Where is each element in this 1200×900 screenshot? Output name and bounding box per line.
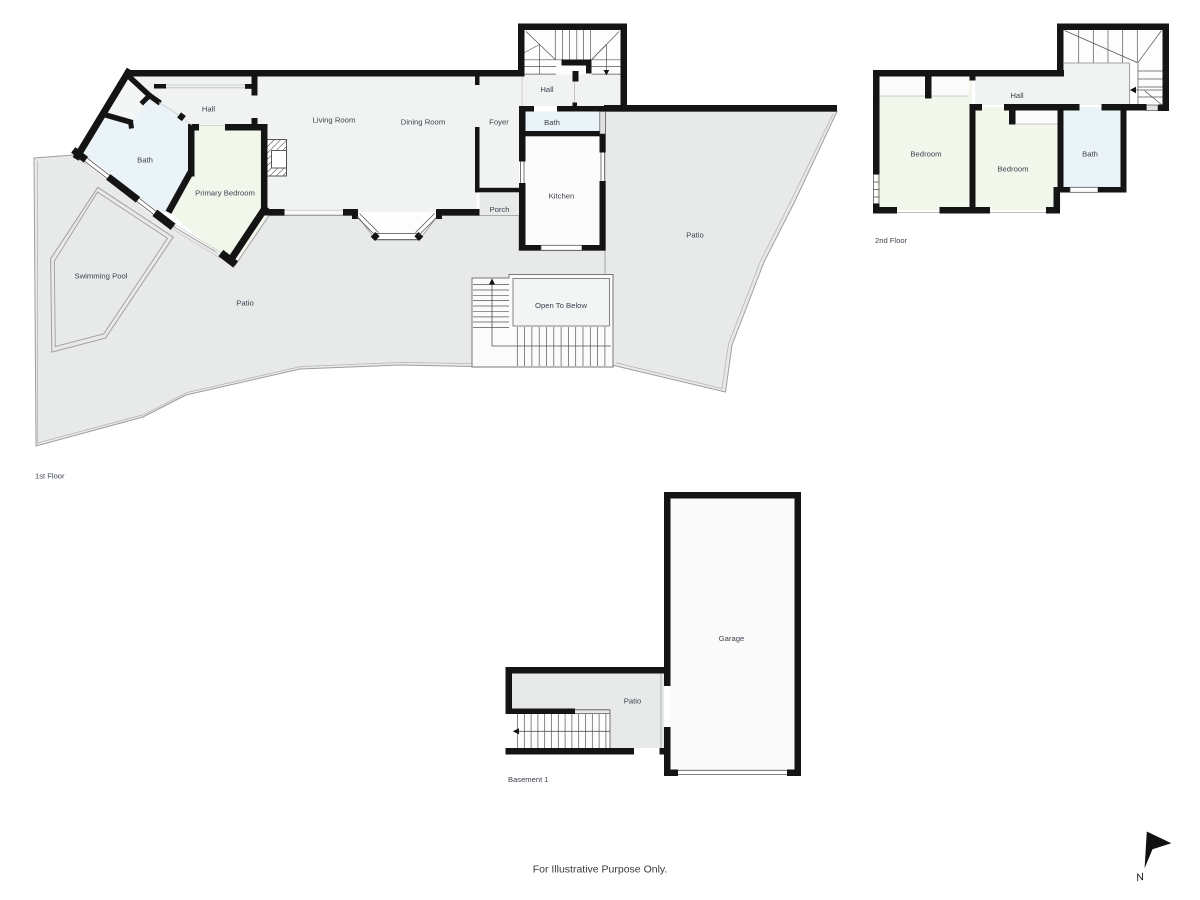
svg-text:Swimming Pool: Swimming Pool xyxy=(75,272,128,281)
svg-text:Kitchen: Kitchen xyxy=(549,192,575,201)
svg-text:Open To Below: Open To Below xyxy=(535,301,587,310)
svg-text:Bath: Bath xyxy=(1082,150,1098,159)
svg-text:Hall: Hall xyxy=(540,85,554,94)
svg-text:2nd Floor: 2nd Floor xyxy=(875,236,908,245)
svg-text:Porch: Porch xyxy=(489,205,509,214)
svg-text:Bath: Bath xyxy=(137,156,153,165)
svg-text:For Illustrative Purpose Only.: For Illustrative Purpose Only. xyxy=(533,864,668,876)
svg-text:Basement 1: Basement 1 xyxy=(508,775,549,784)
svg-text:Primary Bedroom: Primary Bedroom xyxy=(195,189,255,198)
svg-text:Patio: Patio xyxy=(686,231,704,240)
svg-text:Foyer: Foyer xyxy=(489,118,509,127)
svg-text:Living Room: Living Room xyxy=(313,116,356,125)
svg-text:1st Floor: 1st Floor xyxy=(35,472,65,481)
svg-text:Bedroom: Bedroom xyxy=(997,165,1028,174)
svg-text:Hall: Hall xyxy=(1010,91,1024,100)
svg-text:Garage: Garage xyxy=(719,634,745,643)
svg-text:Patio: Patio xyxy=(624,697,642,706)
svg-text:Bedroom: Bedroom xyxy=(910,150,941,159)
svg-text:Dining Room: Dining Room xyxy=(401,118,445,127)
svg-text:Bath: Bath xyxy=(544,118,560,127)
svg-text:Hall: Hall xyxy=(202,105,216,114)
svg-text:Patio: Patio xyxy=(236,299,254,308)
